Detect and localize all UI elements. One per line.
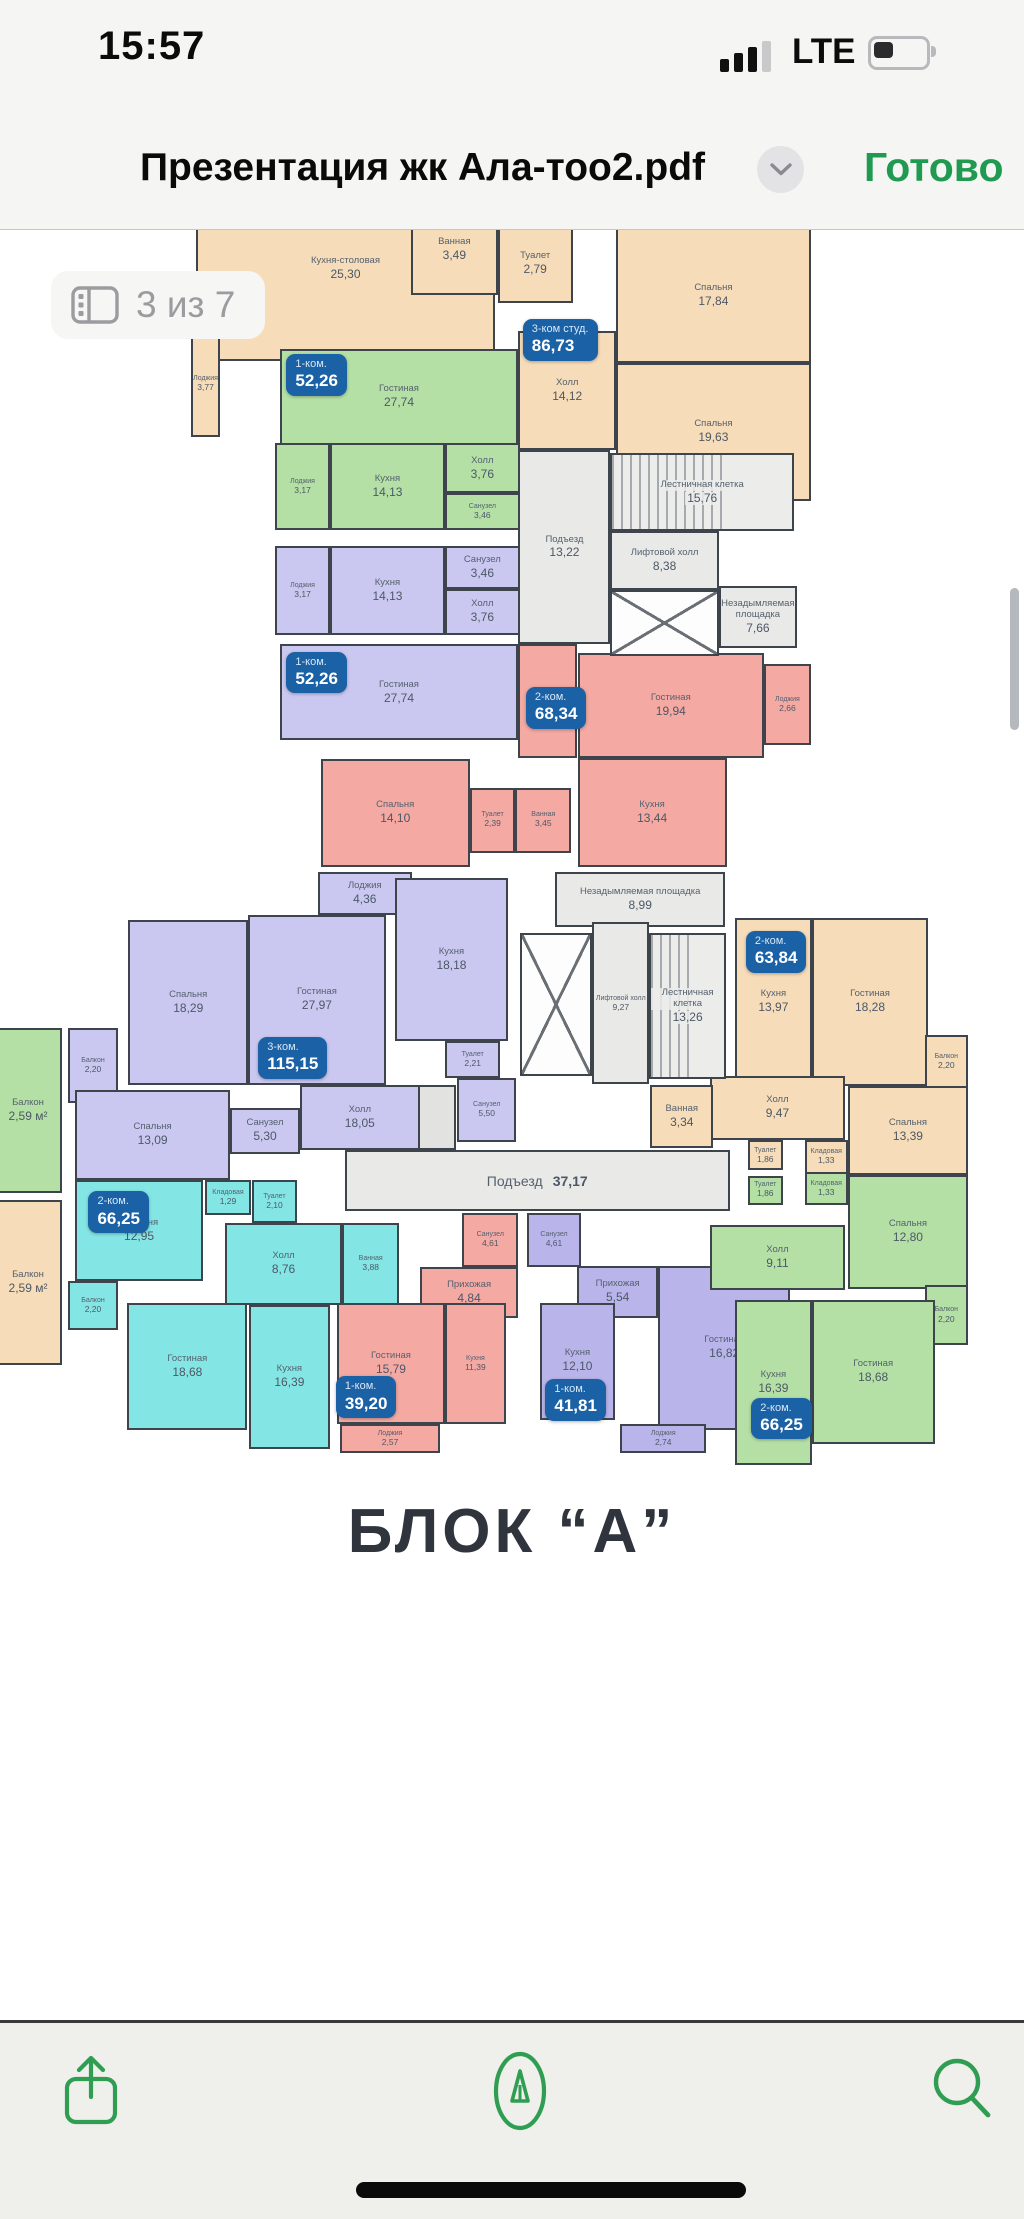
- room: Балкон2,20: [925, 1035, 968, 1090]
- room: Туалет2,10: [252, 1180, 297, 1223]
- scrollbar[interactable]: [1010, 588, 1019, 730]
- room: Незадымляемая площадка8,99: [555, 872, 725, 927]
- floor-plan-upper: Кухня-столовая25,30Ванная3,49Туалет2,79С…: [190, 168, 812, 876]
- apartment-badge: 3-ком.115,15: [258, 1037, 327, 1079]
- floor-plan-neighbor-fragment: Балкон2,59 м²Балкон2,59 м²: [0, 1028, 62, 1365]
- title-dropdown-button[interactable]: [757, 146, 804, 193]
- room: Незадымляемая площадка7,66: [719, 586, 797, 648]
- room: Лоджия3,77: [191, 331, 220, 437]
- apartment-badge: 2-ком.63,84: [746, 931, 807, 973]
- apartment-badge: 2-ком.68,34: [526, 687, 587, 729]
- room: Гостиная18,28: [812, 918, 928, 1086]
- room: Санузел5,30: [230, 1108, 300, 1155]
- room: Лоджия2,57: [340, 1424, 439, 1453]
- shaft-area: [520, 933, 592, 1076]
- apartment-badge: 2-ком.66,25: [751, 1398, 812, 1440]
- apartment-badge: 1-ком.52,26: [286, 652, 347, 694]
- room: Холл3,76: [445, 443, 520, 493]
- room: Подъезд37,17: [345, 1150, 730, 1211]
- room: Кухня11,39: [445, 1303, 506, 1425]
- room: Лоджия3,17: [275, 443, 330, 529]
- room: Ванная3,34: [650, 1085, 713, 1148]
- room: Лифтовой холл8,38: [610, 531, 718, 590]
- room: Санузел4,61: [462, 1213, 518, 1268]
- chevron-down-icon: [770, 163, 792, 176]
- room: Санузел4,61: [527, 1213, 580, 1268]
- room: Гостиная18,68: [127, 1303, 247, 1429]
- room: Кухня16,39: [735, 1300, 812, 1465]
- search-icon: [930, 2055, 994, 2121]
- room: Холл9,47: [710, 1076, 845, 1141]
- room: Санузел5,50: [457, 1078, 517, 1143]
- room: Туалет2,79: [498, 225, 573, 303]
- room: Туалет1,86: [748, 1140, 783, 1170]
- room: Лоджия2,66: [764, 664, 811, 745]
- room: Спальня12,80: [848, 1175, 968, 1289]
- document-title: Презентация жк Ала-тоо2.pdf: [140, 146, 705, 190]
- home-indicator[interactable]: [356, 2182, 746, 2198]
- markup-pen-icon: [490, 2049, 550, 2133]
- battery-icon: [868, 36, 930, 70]
- room: Балкон2,59 м²: [0, 1200, 62, 1365]
- room: Холл18,05: [300, 1085, 420, 1150]
- share-button[interactable]: [62, 2053, 120, 2132]
- room: Гостиная19,94: [578, 653, 765, 758]
- markup-button[interactable]: [490, 2049, 550, 2138]
- page-indicator[interactable]: 3 из 7: [51, 271, 265, 339]
- stairs-area: Лестничная клетка13,26: [649, 933, 726, 1079]
- done-button[interactable]: Готово: [864, 144, 1004, 191]
- room: Балкон2,59 м²: [0, 1028, 62, 1193]
- room: Кухня14,13: [330, 546, 445, 635]
- room: Холл3,76: [445, 589, 520, 636]
- room: Спальня18,29: [128, 920, 248, 1085]
- apartment-badge: 1-ком.41,81: [545, 1379, 606, 1421]
- apartment-badge: 1-ком.52,26: [286, 354, 347, 396]
- room: Холл9,11: [710, 1225, 845, 1290]
- room: Гостиная18,68: [812, 1300, 935, 1444]
- cellular-signal-icon: [720, 40, 771, 72]
- room: Кухня16,39: [249, 1305, 329, 1449]
- room: Кладовая1,33: [805, 1140, 848, 1173]
- apartment-badge: 1-ком.39,20: [336, 1376, 397, 1418]
- stairs-area: Лестничная клетка15,76: [610, 453, 793, 531]
- room: Кладовая1,33: [805, 1172, 848, 1205]
- page-indicator-label: 3 из 7: [136, 284, 235, 326]
- room: Спальня14,10: [321, 759, 470, 867]
- room: Спальня13,09: [75, 1090, 230, 1180]
- room: Туалет1,86: [748, 1176, 783, 1205]
- apartment-badge: 3-ком студ.86,73: [523, 319, 598, 361]
- thumbnails-icon: [71, 286, 119, 324]
- room: Туалет2,39: [470, 788, 515, 853]
- share-icon: [62, 2053, 120, 2127]
- floor-plan-lower: Балкон2,20Спальня18,29Гостиная27,97Лоджи…: [65, 855, 968, 1520]
- status-and-title-bar: 15:57 LTE Презентация жк Ала-тоо2.pdf Го…: [0, 0, 1024, 230]
- shaft-area: [610, 590, 718, 656]
- room: Подъезд13,22: [518, 450, 610, 645]
- network-type-label: LTE: [792, 32, 856, 72]
- room: Холл8,76: [225, 1223, 342, 1305]
- room: Ванная3,88: [342, 1223, 399, 1305]
- room: Ванная3,45: [515, 788, 571, 853]
- room: Лоджия3,17: [275, 546, 330, 635]
- room: Кухня14,13: [330, 443, 445, 529]
- block-title: БЛОК “А”: [0, 1496, 1024, 1567]
- room: Санузел3,46: [445, 493, 520, 530]
- search-button[interactable]: [930, 2055, 994, 2126]
- apartment-badge: 2-ком.66,25: [88, 1191, 149, 1233]
- room: Кладовая1,29: [205, 1180, 251, 1215]
- room: Туалет2,21: [445, 1041, 500, 1078]
- room: Лифтовой холл9,27: [592, 922, 649, 1084]
- status-time: 15:57: [98, 24, 205, 69]
- room: Спальня13,39: [848, 1086, 968, 1175]
- room: Кухня18,18: [395, 878, 509, 1042]
- room: Лоджия2,74: [620, 1424, 706, 1453]
- room: Санузел3,46: [445, 546, 520, 588]
- room: Кухня13,44: [578, 758, 727, 867]
- room: Балкон2,20: [68, 1281, 119, 1331]
- room: Спальня17,84: [616, 228, 811, 363]
